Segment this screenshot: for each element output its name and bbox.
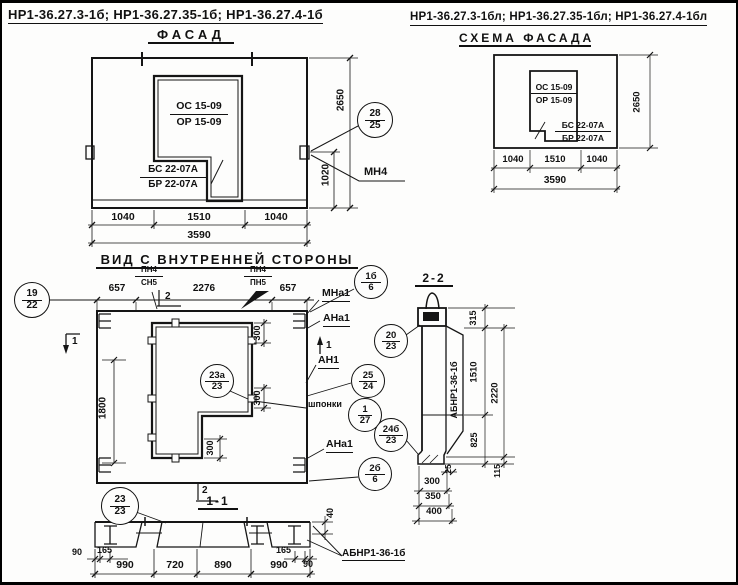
- callout-bottom: 23: [386, 342, 397, 352]
- drawing-sheet: НР1-36.27.3-1б; НР1-36.27.35-1б; НР1-36.…: [0, 0, 738, 585]
- callout-bottom: 22: [26, 301, 37, 312]
- dim-400-foot: 400: [420, 507, 448, 517]
- dim-300-foot: 300: [418, 477, 446, 487]
- dim-300-top: 300: [252, 325, 262, 340]
- opening-mark-top: ОС 15-09: [531, 82, 577, 94]
- mna1-label: МНа1: [322, 288, 350, 302]
- callout-bottom: 23: [212, 382, 223, 392]
- dim-25: 25: [443, 464, 453, 473]
- sec22-embed-plate: [423, 312, 439, 321]
- dim-1510: 1510: [469, 361, 480, 382]
- section1-digit-right: 1: [326, 340, 332, 351]
- facade-opening-mark: ОС 15-09 ОР 15-09: [170, 100, 228, 128]
- callout-1b-6: 1б 6: [354, 265, 388, 299]
- callout-top: 1б: [361, 272, 380, 283]
- section1-digit-left: 1: [72, 336, 78, 347]
- facade-callout-leader: [311, 126, 358, 151]
- callout-top: 23: [110, 495, 129, 507]
- dim-165-right: 165: [276, 546, 291, 556]
- schema-opening-mark: ОС 15-09 ОР 15-09: [531, 82, 577, 105]
- dim-350-foot: 350: [419, 492, 447, 502]
- dim-657-left: 657: [100, 283, 134, 294]
- dim-2276: 2276: [180, 283, 228, 294]
- callout-top: 24б: [379, 425, 403, 436]
- callout-bottom: 23: [386, 436, 397, 446]
- dim-2220: 2220: [490, 382, 501, 403]
- dim-300-mid: 300: [252, 390, 262, 405]
- sec22-lifting-loop: [426, 293, 439, 309]
- dim-3590: 3590: [174, 230, 224, 242]
- channel-mark-tl: [99, 314, 111, 328]
- dim-657-right: 657: [271, 283, 305, 294]
- block-mark-bottom: БР 22-07А: [140, 178, 206, 191]
- dim-1510: 1510: [177, 212, 221, 224]
- dim-115: 115: [492, 464, 502, 478]
- dim-2650: 2650: [632, 91, 643, 112]
- callout-top: 20: [382, 331, 401, 342]
- callout-23-23: 23 23: [101, 487, 139, 525]
- dim-720: 720: [156, 560, 194, 572]
- dim-1040-left: 1040: [496, 155, 530, 165]
- channel-mark-tr: [293, 314, 305, 328]
- dim-315: 315: [468, 310, 478, 325]
- callout-2b-6: 2б 6: [358, 457, 392, 491]
- callout-bottom: 6: [372, 475, 377, 485]
- dim-40: 40: [325, 508, 335, 518]
- dim-990-a: 990: [106, 560, 144, 572]
- callout-top: 1: [358, 405, 371, 416]
- callout-25-24: 25 24: [351, 364, 385, 398]
- dim-300-bottom: 300: [205, 440, 215, 455]
- callout-top: 2б: [365, 464, 384, 475]
- ana1-label-bottom: АНа1: [326, 439, 353, 453]
- opening-mark-top: ОС 15-09: [170, 100, 228, 115]
- callout-28-25: 28 25: [357, 102, 393, 138]
- header-marks-right: НР1-36.27.3-1бл; НР1-36.27.35-1бл; НР1-3…: [410, 11, 707, 26]
- callout-bottom: 6: [368, 283, 373, 293]
- dim-1040-left: 1040: [101, 212, 145, 224]
- dim-1040-right: 1040: [254, 212, 298, 224]
- callout-bottom: 27: [360, 416, 371, 426]
- block-mark-bottom: БР 22-07А: [555, 132, 611, 143]
- dim-1040-right: 1040: [580, 155, 614, 165]
- sec22-foot: [418, 451, 446, 464]
- header-marks-left: НР1-36.27.3-1б; НР1-36.27.35-1б; НР1-36.…: [8, 8, 323, 24]
- pn4-label: ПН4: [244, 265, 272, 277]
- section2-digit-top: 2: [165, 291, 171, 302]
- pn-mark-right: ПН4 ПН5: [244, 265, 272, 287]
- panel-mark-label: АБНР1-36-1б: [342, 548, 405, 561]
- callout-20-23: 20 23: [374, 324, 408, 358]
- callout-bottom: 24: [363, 382, 374, 392]
- section2-digit-bottom: 2: [202, 485, 208, 496]
- shponki-label: шпонки: [308, 400, 342, 410]
- block-mark-top: БС 22-07А: [140, 164, 206, 178]
- dim-1020: 1020: [321, 164, 332, 186]
- channel-mark-br: [293, 458, 305, 472]
- dim-90-right: 90: [303, 560, 313, 570]
- callout-19-22: 19 22: [14, 282, 50, 318]
- anchor-mn4-label: МН4: [364, 166, 387, 178]
- panel-mark-vertical: АБНР1-36-1б: [449, 361, 459, 418]
- dim-3590: 3590: [533, 175, 577, 186]
- schema-title: СХЕМА ФАСАДА: [459, 31, 591, 47]
- dim-90-left: 90: [72, 548, 82, 558]
- callout-top: 23а: [205, 371, 229, 382]
- an1-label: АН1: [318, 355, 339, 369]
- dim-1800: 1800: [98, 397, 109, 419]
- dim-1510: 1510: [538, 155, 572, 165]
- section-2-2-title: 2-2: [415, 271, 453, 287]
- callout-24b-23: 24б 23: [374, 418, 408, 452]
- pn4-label: ПН4: [135, 265, 163, 277]
- facade-block-mark: БС 22-07А БР 22-07А: [140, 164, 206, 191]
- block-mark-top: БС 22-07А: [555, 120, 611, 132]
- sn5-label: СН5: [135, 277, 163, 288]
- opening-mark-bottom: ОР 15-09: [170, 115, 228, 129]
- dim-2650: 2650: [336, 89, 347, 111]
- callout-top: 19: [22, 289, 41, 301]
- ana1-label-top: АНа1: [323, 313, 350, 327]
- callout-bottom: 25: [369, 121, 380, 132]
- schema-block-mark: БС 22-07А БР 22-07А: [555, 120, 611, 143]
- dim-990-b: 990: [260, 560, 298, 572]
- dim-890: 890: [204, 560, 242, 572]
- pn-mark-left: ПН4 СН5: [135, 265, 163, 287]
- sec11-left-rib: [95, 522, 142, 547]
- callout-top: 25: [359, 371, 378, 382]
- pn5-label: ПН5: [244, 277, 272, 288]
- dim-825: 825: [469, 432, 479, 447]
- callout-bottom: 23: [114, 507, 125, 518]
- facade-title: ФАСАД: [148, 27, 234, 44]
- channel-mark-bl: [99, 458, 111, 472]
- section-1-1-title: 1-1: [198, 494, 238, 510]
- callout-23a-23: 23а 23: [200, 364, 234, 398]
- dim-165-left: 165: [97, 546, 112, 556]
- sec11-label-leaders: [307, 526, 342, 556]
- opening-mark-bottom: ОР 15-09: [531, 94, 577, 105]
- callout-top: 28: [365, 109, 384, 121]
